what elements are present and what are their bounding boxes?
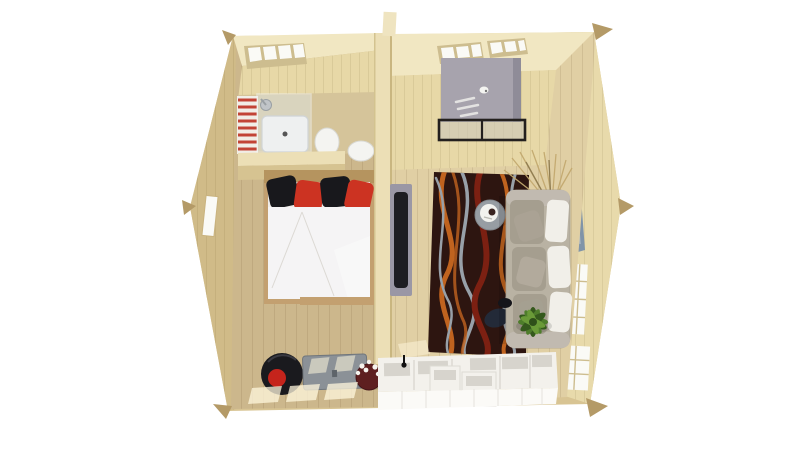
cabin-floorplan-svg [0, 0, 800, 450]
bedroom [248, 170, 385, 404]
ridge-beam-top [382, 12, 396, 37]
tall-gray-cabinet [441, 58, 521, 122]
floorplan-render [0, 0, 800, 450]
shower-drain [283, 132, 288, 137]
towel-radiator [237, 96, 258, 154]
wall-tv [390, 184, 412, 296]
glass-shower [257, 94, 311, 152]
black-bag [498, 298, 512, 308]
coffee-cup [489, 209, 496, 216]
double-bed [264, 170, 375, 305]
footboard [300, 297, 374, 305]
armrest-bottom [506, 332, 570, 348]
left-gable-wall [190, 36, 238, 411]
tv-screen [394, 192, 408, 288]
black-frame-console [439, 120, 525, 140]
kitchen-counter [378, 352, 558, 410]
wash-basin [348, 141, 374, 161]
